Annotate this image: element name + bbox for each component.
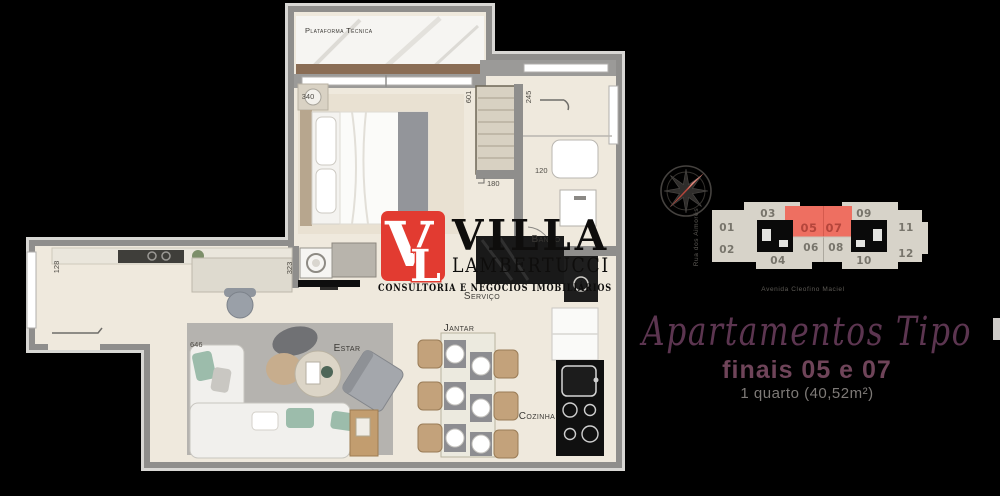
floorplan-graphic: Plataforma Técnica Quarto Banho Serviço … [0,0,1000,496]
tv-stand [320,287,338,290]
elevator-cab [762,229,771,241]
living-room [187,322,405,458]
side-table-tray [356,418,370,436]
flyer-canvas: Plataforma Técnica Quarto Banho Serviço … [0,0,1000,496]
green-pillow [286,408,314,428]
closet-stub-wall [476,170,523,179]
chair [494,392,518,420]
label-jantar: Jantar [444,323,475,334]
unit-06: 06 [803,242,819,254]
core-right [851,220,887,252]
elevator-cab [856,240,865,247]
logo-tagline: CONSULTORIA E NEGÓCIOS IMOBILIÁRIOS [378,282,612,294]
unit-07-highlighted: 07 [825,221,842,235]
bed-headboard [300,110,312,226]
dining-chairs-right [494,350,518,458]
street-bottom-label: Avenida Cleofino Maciel [761,286,844,293]
logo-surname: LAMBERTUCCI [452,253,610,277]
screen-edge-fragment [993,318,1000,340]
elevator-cab [779,240,788,247]
servico-cabinet [332,243,376,277]
chair [418,424,442,452]
unit-03: 03 [760,208,776,220]
kitchen [552,308,604,456]
subheading-finais: finais 05 e 07 [722,356,892,384]
unit-02: 02 [719,244,735,256]
arm-window [27,252,36,328]
unit-11: 11 [898,222,914,234]
chair [494,430,518,458]
washer-drum [312,259,320,267]
plate [446,345,464,363]
unit-08: 08 [828,242,844,254]
unit-04: 04 [770,255,786,267]
chair [418,340,442,368]
keyplan: 01 02 03 04 05 06 07 08 09 10 11 12 Rua … [693,202,928,293]
bath-top-wall [480,60,616,76]
unit-05-highlighted: 05 [800,221,817,235]
desk [192,258,292,292]
unit-info: 1 quarto (40,52m²) [740,385,873,402]
plate [446,387,464,405]
table-bowl [321,366,333,378]
plate [472,357,490,375]
unit-09: 09 [856,208,872,220]
info-panel: 01 02 03 04 05 06 07 08 09 10 11 12 Rua … [639,166,1000,402]
chair [418,382,442,410]
window-glass [524,64,608,72]
dim-245: 245 [524,91,533,104]
dim-323: 323 [285,262,294,275]
entry-door-gap [48,338,100,350]
dim-340: 340 [302,92,315,101]
room-plataforma [296,16,484,75]
sink-faucet [594,378,599,383]
dim-601: 601 [464,91,473,104]
label-cozinha: Cozinha [519,411,555,422]
wardrobe-body [476,86,516,174]
unit-10: 10 [856,255,872,267]
tv [298,280,360,287]
unit-12: 12 [898,248,914,260]
dim-646: 646 [190,340,203,349]
compass-rose-icon [661,166,711,216]
building-jog [918,222,928,254]
plate [446,429,464,447]
office-chair-seat [227,292,253,318]
dim-120: 120 [535,166,548,175]
white-pillow [252,412,278,430]
pillow [316,117,336,165]
unit-01: 01 [719,222,735,234]
bath-west-wall [514,84,523,180]
pillow [316,169,336,213]
wardrobe [476,86,516,174]
plataforma-brown-wall [296,64,484,75]
dining [418,333,518,458]
chair [494,350,518,378]
elevator-cab [873,229,882,241]
plate [472,435,490,453]
dining-chairs-left [418,340,442,452]
plate [472,399,490,417]
shower-tray [552,140,598,178]
dim-180: 180 [487,179,500,188]
kitchen-sink [562,366,596,396]
table-books [306,362,320,384]
label-plataforma: Plataforma Técnica [305,26,373,35]
heading-apartamentos-tipo: Apartamentos Tipo [639,309,972,355]
street-left-label: Rua dos Aimorés [693,208,700,267]
faucet [574,196,586,200]
core-left [757,220,793,252]
label-estar: Estar [334,343,361,354]
dim-128: 128 [52,261,61,274]
